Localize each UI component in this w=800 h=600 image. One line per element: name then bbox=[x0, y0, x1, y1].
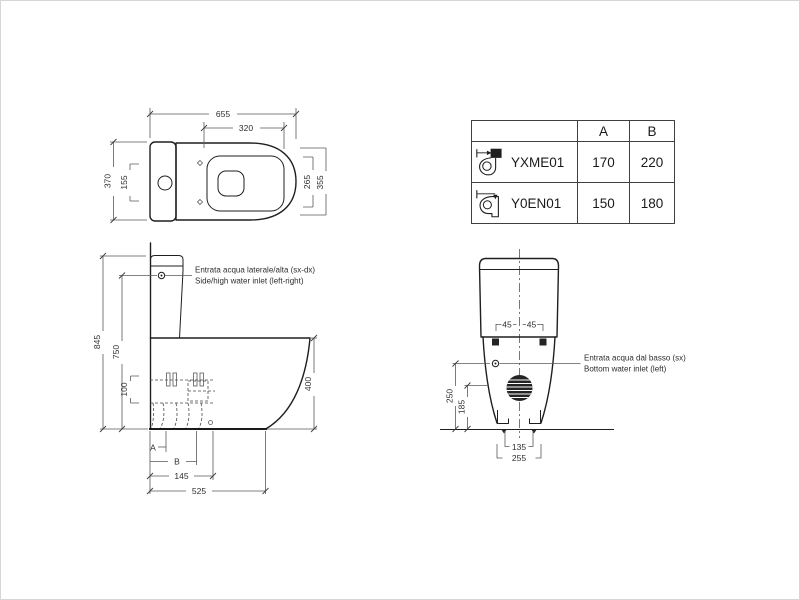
side-view: Entrata acqua laterale/alta (sx-dx) Side… bbox=[92, 243, 317, 496]
seat-ring bbox=[207, 156, 284, 211]
p-trap-wall-outlet-icon bbox=[475, 146, 508, 178]
bottom-inlet-note-it: Entrata acqua dal basso (sx) bbox=[584, 354, 686, 363]
feet-brackets bbox=[498, 410, 541, 424]
header-col-a: A bbox=[578, 121, 630, 142]
side-view-annotation: Entrata acqua laterale/alta (sx-dx) Side… bbox=[165, 266, 315, 286]
s-trap-floor-outlet-icon bbox=[475, 187, 508, 219]
dim-355: 355 bbox=[315, 175, 325, 189]
side-view-dimensions: 845 750 100 400 A B 145 bbox=[92, 253, 317, 496]
drain-grate-icon bbox=[505, 375, 534, 401]
product-code: YXME01 bbox=[511, 155, 564, 170]
dim-370: 370 bbox=[103, 174, 113, 188]
fixing-square-left bbox=[492, 339, 499, 346]
cistern-body bbox=[180, 266, 184, 338]
fixing-square-right bbox=[540, 339, 547, 346]
value-b: 220 bbox=[630, 142, 675, 183]
spec-table-header: A B bbox=[472, 121, 675, 142]
dim-400: 400 bbox=[303, 377, 313, 391]
technical-drawing-canvas: 655 320 370 155 265 355 bbox=[0, 0, 800, 600]
fixing-hole-icon bbox=[209, 421, 213, 425]
back-view: Entrata acqua dal basso (sx) Bottom wate… bbox=[440, 249, 686, 463]
value-b: 180 bbox=[630, 183, 675, 224]
value-a: 170 bbox=[578, 142, 630, 183]
side-view-hidden-pipes bbox=[150, 373, 215, 428]
dim-45-right: 45 bbox=[527, 320, 537, 330]
dim-255: 255 bbox=[512, 453, 526, 463]
bowl-opening bbox=[218, 171, 244, 196]
header-col-b: B bbox=[630, 121, 675, 142]
dim-845: 845 bbox=[92, 335, 102, 349]
dim-185: 185 bbox=[457, 400, 467, 414]
product-code: Y0EN01 bbox=[511, 196, 561, 211]
flush-button-icon bbox=[158, 176, 172, 190]
bottom-inlet-note-en: Bottom water inlet (left) bbox=[584, 365, 667, 374]
dim-750: 750 bbox=[111, 345, 121, 359]
dim-320: 320 bbox=[239, 123, 253, 133]
table-row: Y0EN01 150 180 bbox=[472, 183, 675, 224]
dim-45-left: 45 bbox=[502, 320, 512, 330]
value-a: 150 bbox=[578, 183, 630, 224]
bowl-profile bbox=[151, 338, 311, 429]
spec-table: A B YXME01 170 220 bbox=[471, 120, 675, 224]
dim-a: A bbox=[150, 443, 156, 453]
top-view-outline bbox=[150, 142, 296, 221]
dim-265: 265 bbox=[302, 175, 312, 189]
cistern-back bbox=[480, 259, 559, 338]
dim-135: 135 bbox=[512, 442, 526, 452]
back-view-annotation: Entrata acqua dal basso (sx) Bottom wate… bbox=[500, 354, 687, 374]
dim-b: B bbox=[174, 457, 180, 467]
dim-145: 145 bbox=[174, 471, 188, 481]
seat-hinge-icons bbox=[198, 161, 203, 205]
dim-525: 525 bbox=[192, 486, 206, 496]
dim-250: 250 bbox=[445, 389, 455, 403]
table-row: YXME01 170 220 bbox=[472, 142, 675, 183]
top-view: 655 320 370 155 265 355 bbox=[103, 108, 327, 223]
header-empty-cell bbox=[472, 121, 578, 142]
dim-155: 155 bbox=[119, 175, 129, 189]
side-inlet-note-it: Entrata acqua laterale/alta (sx-dx) bbox=[195, 266, 315, 275]
side-inlet-note-en: Side/high water inlet (left-right) bbox=[195, 277, 304, 286]
dim-655: 655 bbox=[216, 109, 230, 119]
dim-100: 100 bbox=[119, 382, 129, 396]
cistern-lid bbox=[151, 256, 184, 267]
